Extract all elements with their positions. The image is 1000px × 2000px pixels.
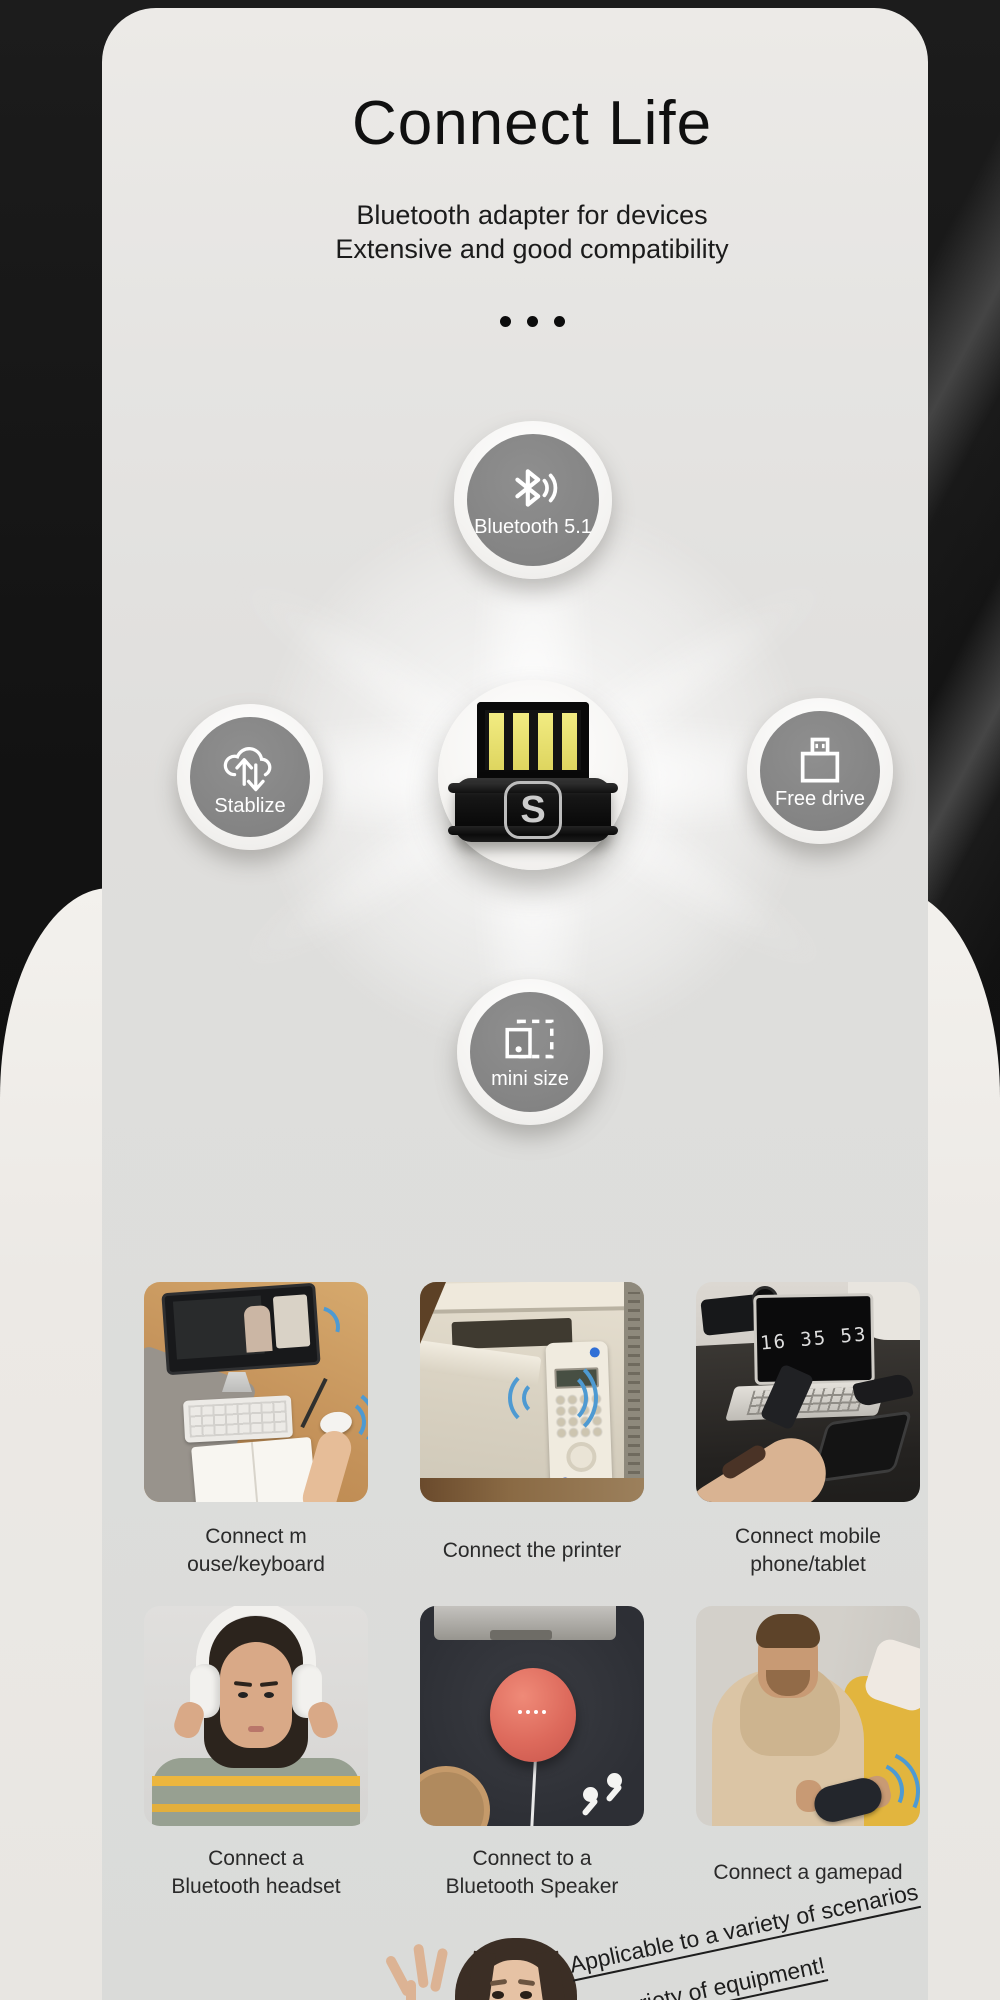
screen-person [243, 1305, 272, 1353]
caption-line: Bluetooth headset [144, 1873, 368, 1901]
earbud [583, 1787, 598, 1802]
laptop-screen: 16 35 53 [753, 1293, 875, 1385]
notebook [191, 1437, 317, 1502]
caption-line: ouse/keyboard [144, 1551, 368, 1579]
badge-circle: mini size [470, 992, 590, 1112]
caption-line: Connect mobile [696, 1523, 920, 1551]
dot [500, 316, 511, 327]
keyboard [183, 1395, 293, 1443]
caption-line: Connect a [144, 1845, 368, 1873]
eye [264, 1692, 274, 1698]
caption-line: Connect the printer [420, 1537, 644, 1565]
caption-phone-tablet: Connect mobile phone/tablet [696, 1522, 920, 1580]
decorative-dots [102, 314, 962, 332]
speaker-led-dots [518, 1710, 522, 1714]
caption-line: Connect to a [420, 1845, 644, 1873]
hand [305, 1699, 341, 1741]
caption-speaker: Connect to a Bluetooth Speaker [420, 1844, 644, 1902]
sweater [152, 1758, 360, 1826]
dot [554, 316, 565, 327]
printer-dial [566, 1441, 597, 1472]
usb-adapter-pins [489, 713, 577, 770]
finger [430, 1947, 449, 1992]
badge-label: Bluetooth 5.1 [474, 516, 592, 538]
printer-lid [432, 1282, 626, 1314]
hair [756, 1614, 820, 1648]
mini-size-icon [501, 1015, 559, 1065]
wireless-wave [514, 1356, 598, 1440]
subtitle-line-1: Bluetooth adapter for devices [102, 198, 962, 232]
caption-line: Connect a gamepad [696, 1859, 920, 1887]
caption-headset: Connect a Bluetooth headset [144, 1844, 368, 1902]
photo-connect-mouse-keyboard [144, 1282, 368, 1502]
badge-circle: Free drive [760, 711, 880, 831]
laptop-clock-text: 16 35 53 [759, 1323, 868, 1354]
badge-label: Free drive [775, 788, 865, 810]
earbud [607, 1773, 622, 1788]
badge-circle: Bluetooth 5.1 [467, 434, 599, 566]
printer-base [420, 1478, 644, 1502]
photo-connect-printer [420, 1282, 644, 1502]
product-banner: Connect Life Bluetooth adapter for devic… [0, 0, 1000, 2000]
speaker-cable [530, 1760, 537, 1826]
lips [248, 1726, 264, 1732]
bluetooth-signal-icon [506, 463, 560, 513]
page-subtitle: Bluetooth adapter for devices Extensive … [102, 198, 962, 266]
caption-printer: Connect the printer [420, 1522, 644, 1580]
caption-line: Bluetooth Speaker [420, 1873, 644, 1901]
caption-line: Connect m [144, 1523, 368, 1551]
printer-side-vent [624, 1282, 644, 1502]
hand-gesture [388, 1944, 462, 2000]
badge-circle: Stablize [190, 717, 310, 837]
subtitle-line-2: Extensive and good compatibility [102, 232, 962, 266]
panel-button [590, 1347, 600, 1357]
usb-drive-icon [794, 733, 846, 785]
feature-badge-stablize: Stablize [177, 704, 323, 850]
badge-label: Stablize [214, 795, 285, 817]
page-title: Connect Life [102, 88, 962, 159]
feature-badge-mini-size: mini size [457, 979, 603, 1125]
badge-label: mini size [491, 1068, 569, 1090]
eye [492, 1991, 504, 1999]
caption-line: phone/tablet [696, 1551, 920, 1579]
feature-badge-free-drive: Free drive [747, 698, 893, 844]
eye [238, 1692, 248, 1698]
photo-connect-speaker [420, 1606, 644, 1826]
brand-logo: S [504, 781, 562, 839]
photo-connect-phone-tablet: 16 35 53 [696, 1282, 920, 1502]
headphone-band [196, 1606, 316, 1670]
photo-connect-gamepad [696, 1606, 920, 1826]
laptop-hinge [490, 1630, 552, 1640]
caption-mouse-keyboard: Connect m ouse/keyboard [144, 1522, 368, 1580]
smart-speaker [490, 1668, 576, 1762]
cloud-sync-icon [219, 738, 281, 792]
cork-coaster [420, 1766, 490, 1826]
palm [406, 1980, 416, 2000]
feature-badge-bluetooth: Bluetooth 5.1 [454, 421, 612, 579]
dot [527, 316, 538, 327]
eye [520, 1991, 532, 1999]
photo-connect-headset [144, 1606, 368, 1826]
